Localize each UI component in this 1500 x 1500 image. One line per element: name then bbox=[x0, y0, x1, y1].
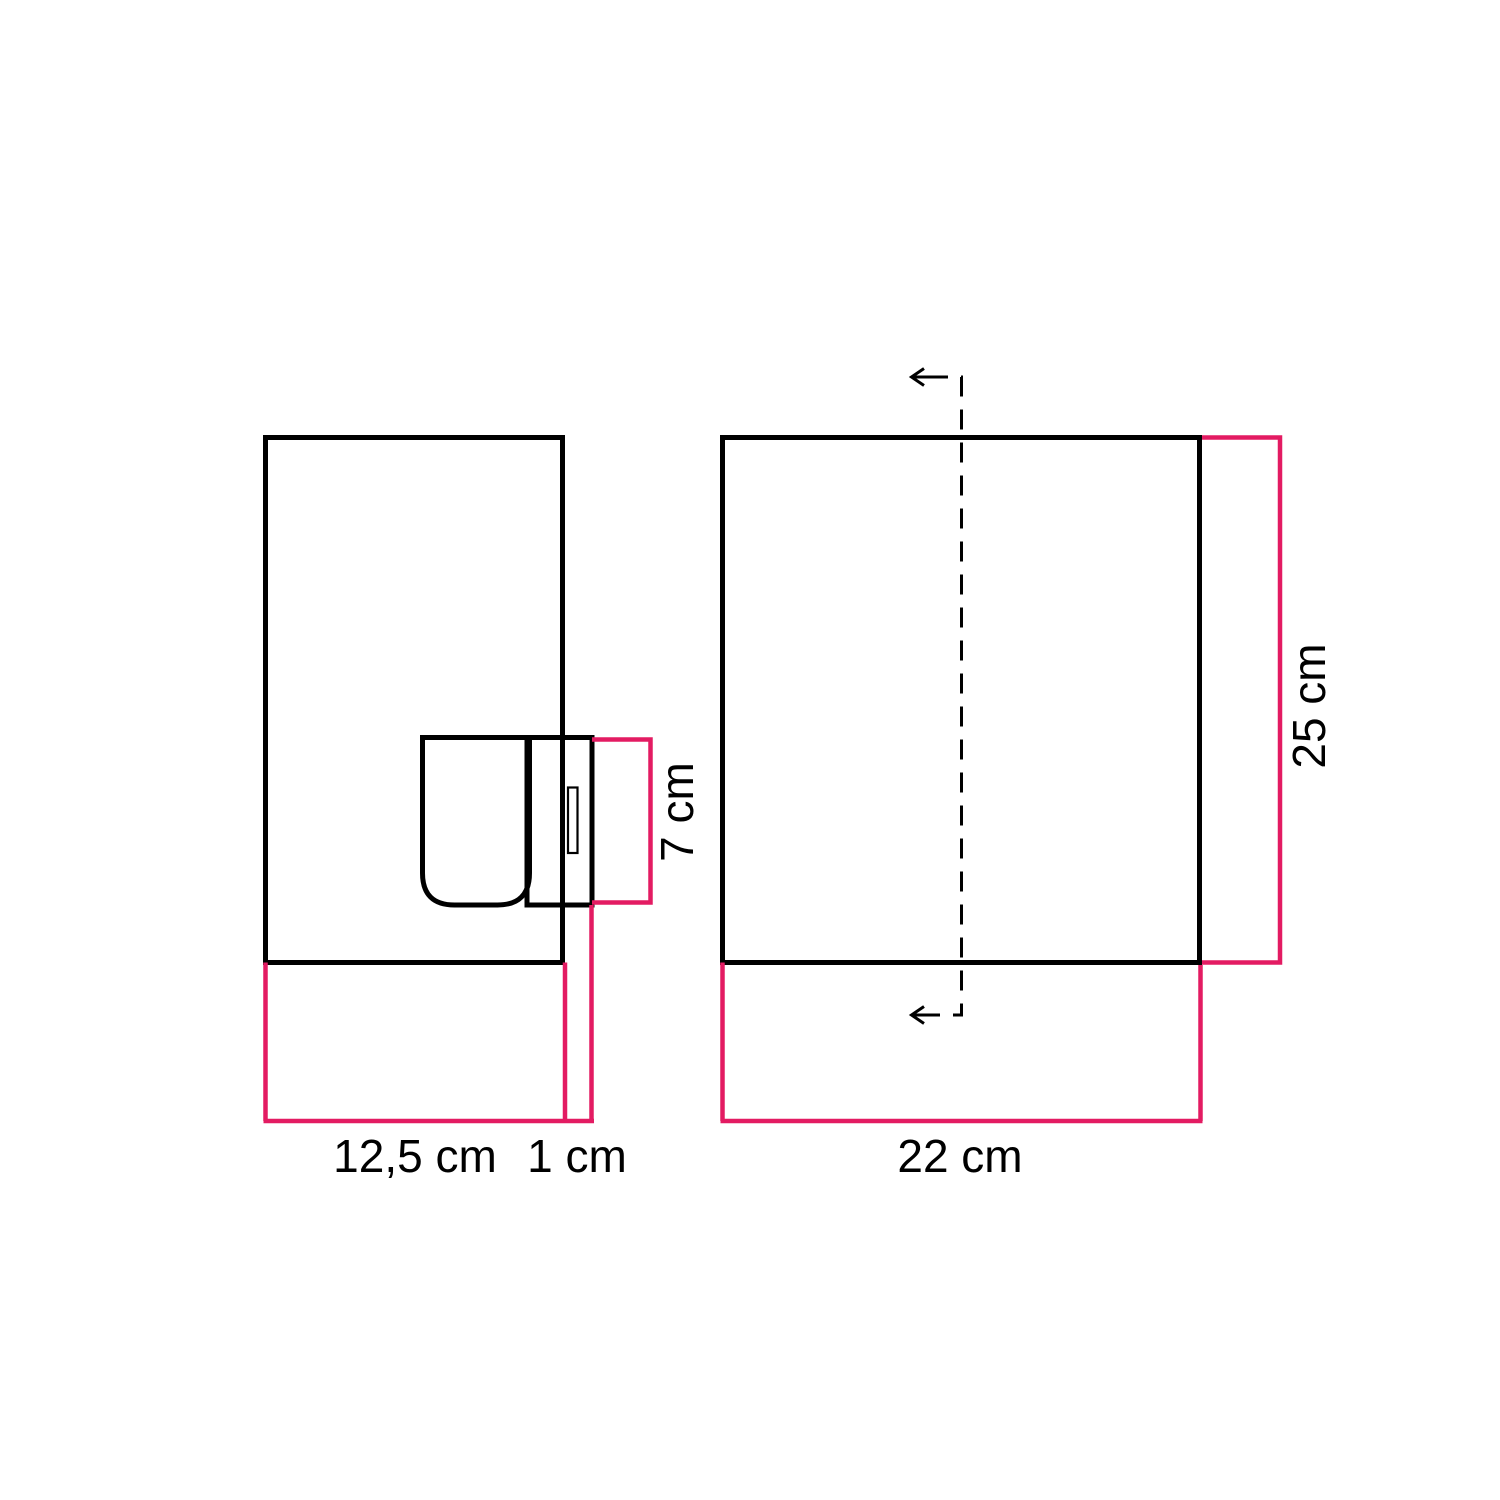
dimension-drawing-canvas: 7 cm 12,5 cm 1 cm bbox=[0, 0, 1500, 1500]
socket-height-label: 7 cm bbox=[651, 762, 703, 862]
left-arrow-icon-bottom bbox=[912, 1007, 929, 1024]
socket-depth-bracket bbox=[592, 740, 651, 903]
side-view-lampholder-outline bbox=[423, 738, 530, 906]
product-dimensions-diagram: 7 cm 12,5 cm 1 cm bbox=[0, 0, 1500, 1500]
front-width-label: 22 cm bbox=[897, 1130, 1022, 1182]
left-arrow-icon-top bbox=[912, 369, 929, 386]
front-height-bracket bbox=[1202, 438, 1280, 963]
side-width-label: 12,5 cm bbox=[333, 1130, 497, 1182]
front-view: 25 cm 22 cm bbox=[721, 369, 1336, 1183]
cable-axis-dashed-line bbox=[928, 377, 962, 1015]
side-view: 7 cm 12,5 cm 1 cm bbox=[264, 438, 704, 1183]
front-height-label: 25 cm bbox=[1283, 643, 1335, 768]
overhang-width-label: 1 cm bbox=[527, 1130, 627, 1182]
side-view-shade-outline bbox=[266, 438, 563, 963]
side-view-switch-slot bbox=[568, 788, 578, 854]
side-view-socket-cup-outline bbox=[527, 738, 592, 906]
